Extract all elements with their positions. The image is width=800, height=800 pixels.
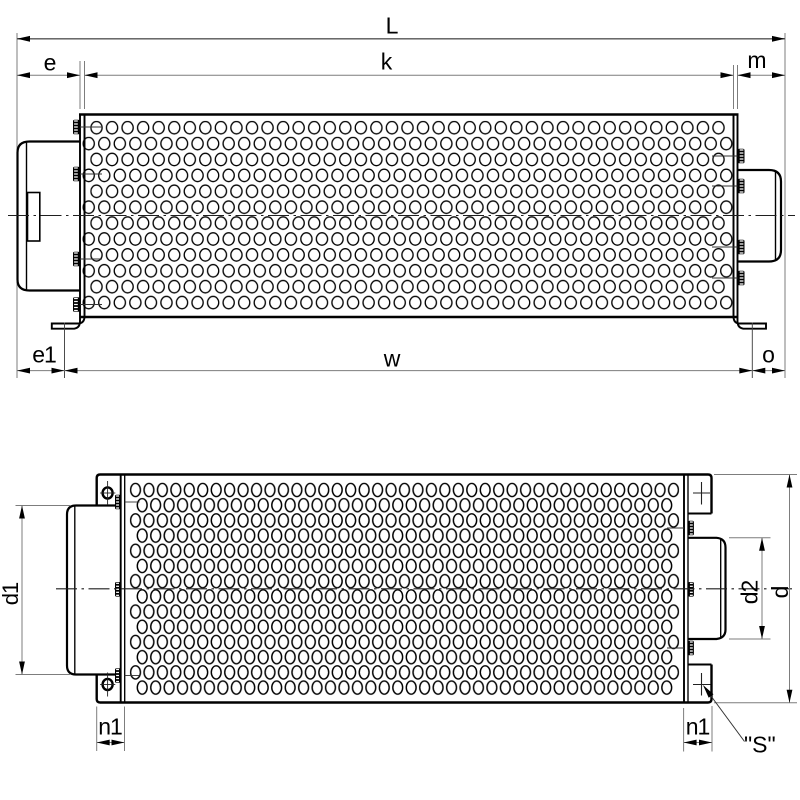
svg-text:n1: n1	[686, 714, 710, 740]
svg-text:k: k	[381, 49, 393, 75]
svg-text:n1: n1	[98, 714, 122, 740]
svg-text:d1: d1	[0, 582, 23, 605]
svg-text:e: e	[44, 50, 57, 76]
svg-text:L: L	[386, 13, 399, 39]
svg-text:e1: e1	[32, 342, 56, 368]
svg-text:o: o	[762, 342, 775, 368]
svg-text:w: w	[383, 346, 401, 372]
svg-text:m: m	[747, 47, 766, 73]
svg-text:d: d	[767, 586, 793, 599]
svg-text:"S": "S"	[744, 732, 776, 758]
svg-text:d2: d2	[737, 581, 763, 605]
